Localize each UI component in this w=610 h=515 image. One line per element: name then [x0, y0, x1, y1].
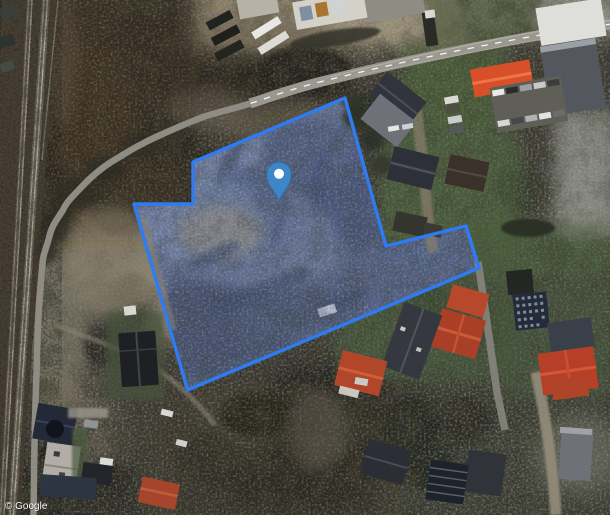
svg-text:© Google: © Google [5, 501, 48, 512]
